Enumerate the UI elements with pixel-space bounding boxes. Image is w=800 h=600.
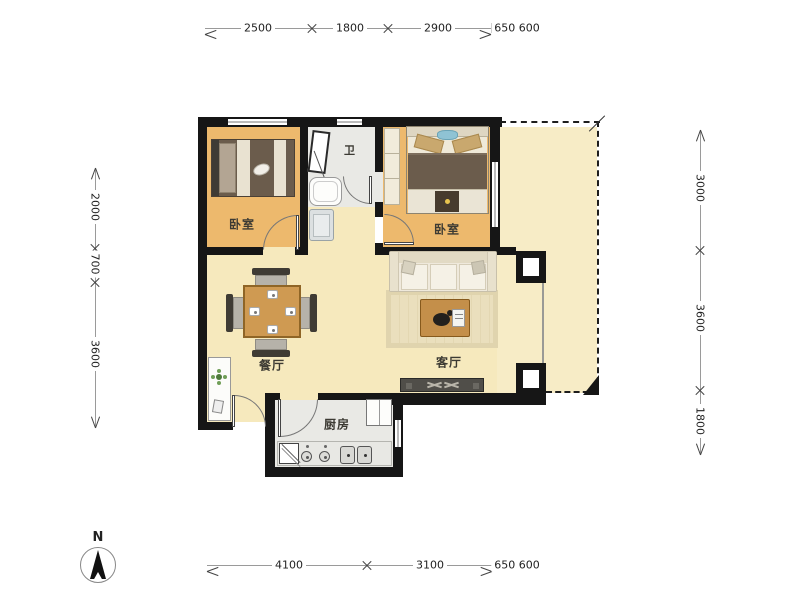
dim-label-top-650-600: 650 600 [491,22,543,35]
label-living: 客厅 [436,354,462,371]
stove-knob [306,445,309,448]
wall-bathroom-bedroom2-a [375,127,383,172]
floor-balcony [497,127,597,393]
dim-arrow [205,28,217,40]
wall-bathroom-bedroom2-c [375,243,383,255]
floor-bathroom-doorway [375,172,383,202]
sofa-pillow [401,260,416,275]
bed-pillows [219,143,236,193]
bed-bedroom-1 [211,139,295,197]
bed-tray-box [435,191,459,212]
burner [319,451,330,462]
bed-duvet [408,153,487,189]
wall-kitchen-left [265,393,275,477]
plate [267,325,278,334]
dim-label-left-2000: 2000 [89,190,102,224]
door-leaf-entrance [232,395,235,427]
dim-label-right-3600: 3600 [694,301,707,335]
north-label: N [93,530,104,545]
dim-arrow [89,416,101,428]
label-kitchen: 厨房 [324,416,350,433]
dining-chair-bottom [252,339,290,357]
dim-tick [306,22,318,34]
label-bathroom: 卫 [344,142,356,158]
door-leaf-bedroom-1 [296,215,299,250]
tv-stand-knob [406,383,412,389]
sofa-arm-right [487,252,496,291]
tv-stand-knob [473,383,479,389]
wall-kitchen-right-a [393,393,403,420]
plate [285,307,296,316]
wall-bedroom1-bathroom [300,127,308,255]
wall-bedroom2-right-a [490,117,500,162]
dim-tick [382,22,394,34]
door-leaf-kitchen [278,399,281,437]
bathtub-inner [313,181,338,202]
bed-blanket-stripe [274,140,286,196]
kitchen-sink [340,446,373,464]
dining-table [243,285,301,338]
bed-bedroom-2 [406,126,489,214]
wardrobe [384,128,400,205]
entry-plant-icon [216,374,222,380]
wardrobe-divider [385,153,399,154]
dim-arrow [89,168,101,180]
dim-tick [361,559,373,571]
dim-label-top-1800: 1800 [333,22,367,35]
dim-label-left-3600: 3600 [89,337,102,371]
wall-bedroom1-bottom [207,247,263,255]
column-bottom [516,363,546,395]
stove [300,444,334,464]
wall-top-a [198,117,228,127]
plate [249,307,260,316]
dim-label-left-700: 700 [89,251,102,278]
wall-bathroom-bedroom2-b [375,202,383,217]
wardrobe-divider [385,178,399,179]
washing-machine [309,209,334,241]
tv-stand [400,378,484,392]
sofa-cushion [430,264,457,290]
sofa-pillow [471,260,486,275]
dim-label-bottom-4100: 4100 [272,559,306,572]
dim-tick [89,276,101,288]
sofa-arm-left [390,252,399,291]
washing-machine-inner [313,214,330,237]
north-compass-icon [80,547,116,583]
wall-entry-bottom [198,422,233,430]
label-dining: 餐厅 [259,357,285,374]
dining-chair-right [299,294,317,332]
label-bedroom-1: 卧室 [229,216,255,233]
dim-arrow [694,130,706,142]
door-leaf-bathroom [369,176,372,204]
window-bedroom-1 [228,117,287,127]
dim-arrow [207,565,219,577]
dim-label-bottom-650-600: 650 600 [491,559,543,572]
bed-blanket-stripe [237,140,250,196]
dim-label-top-2900: 2900 [421,22,455,35]
wall-left [198,117,207,430]
dim-arrow [694,443,706,455]
label-bedroom-2: 卧室 [434,221,460,238]
sofa [389,251,497,292]
bed-runner-teal [437,130,458,140]
bed-headboard [212,140,219,196]
balcony-glass-line [542,283,544,363]
burner [301,451,312,462]
coffee-table [420,299,470,337]
bathtub [309,177,342,206]
balcony-dash-right [597,121,599,393]
column-top [516,251,546,283]
dining-chair-left [226,294,244,332]
dim-tick [694,244,706,256]
window-kitchen [393,420,403,447]
wall-kitchen-right-b [393,447,403,477]
dim-arrow [480,565,492,577]
dim-label-right-3000: 3000 [694,171,707,205]
door-leaf-bedroom-2 [384,242,414,245]
north-indicator: N [76,530,120,588]
window-bedroom-2 [490,162,500,227]
dim-arrow [479,28,491,40]
floor-plan-canvas: 卧室 卫 卧室 餐厅 客厅 厨房 2500 1800 2900 650 600 … [0,0,800,600]
dim-tick [694,384,706,396]
plate [267,290,278,299]
kitchen-corner-unit [279,443,299,464]
dim-label-bottom-3100: 3100 [413,559,447,572]
stove-knob [324,445,327,448]
bed-cushion [252,161,272,177]
wall-kitchen-bottom [265,467,403,477]
dim-label-top-2500: 2500 [241,22,275,35]
window-bathroom [337,117,362,127]
dining-chair-top [252,268,290,286]
magazine [452,309,465,327]
fridge [366,399,392,426]
wall-top-b [287,117,337,127]
bed-tray-dot [445,199,450,204]
balcony-dash-top [500,121,600,123]
dim-label-right-1800: 1800 [694,404,707,438]
